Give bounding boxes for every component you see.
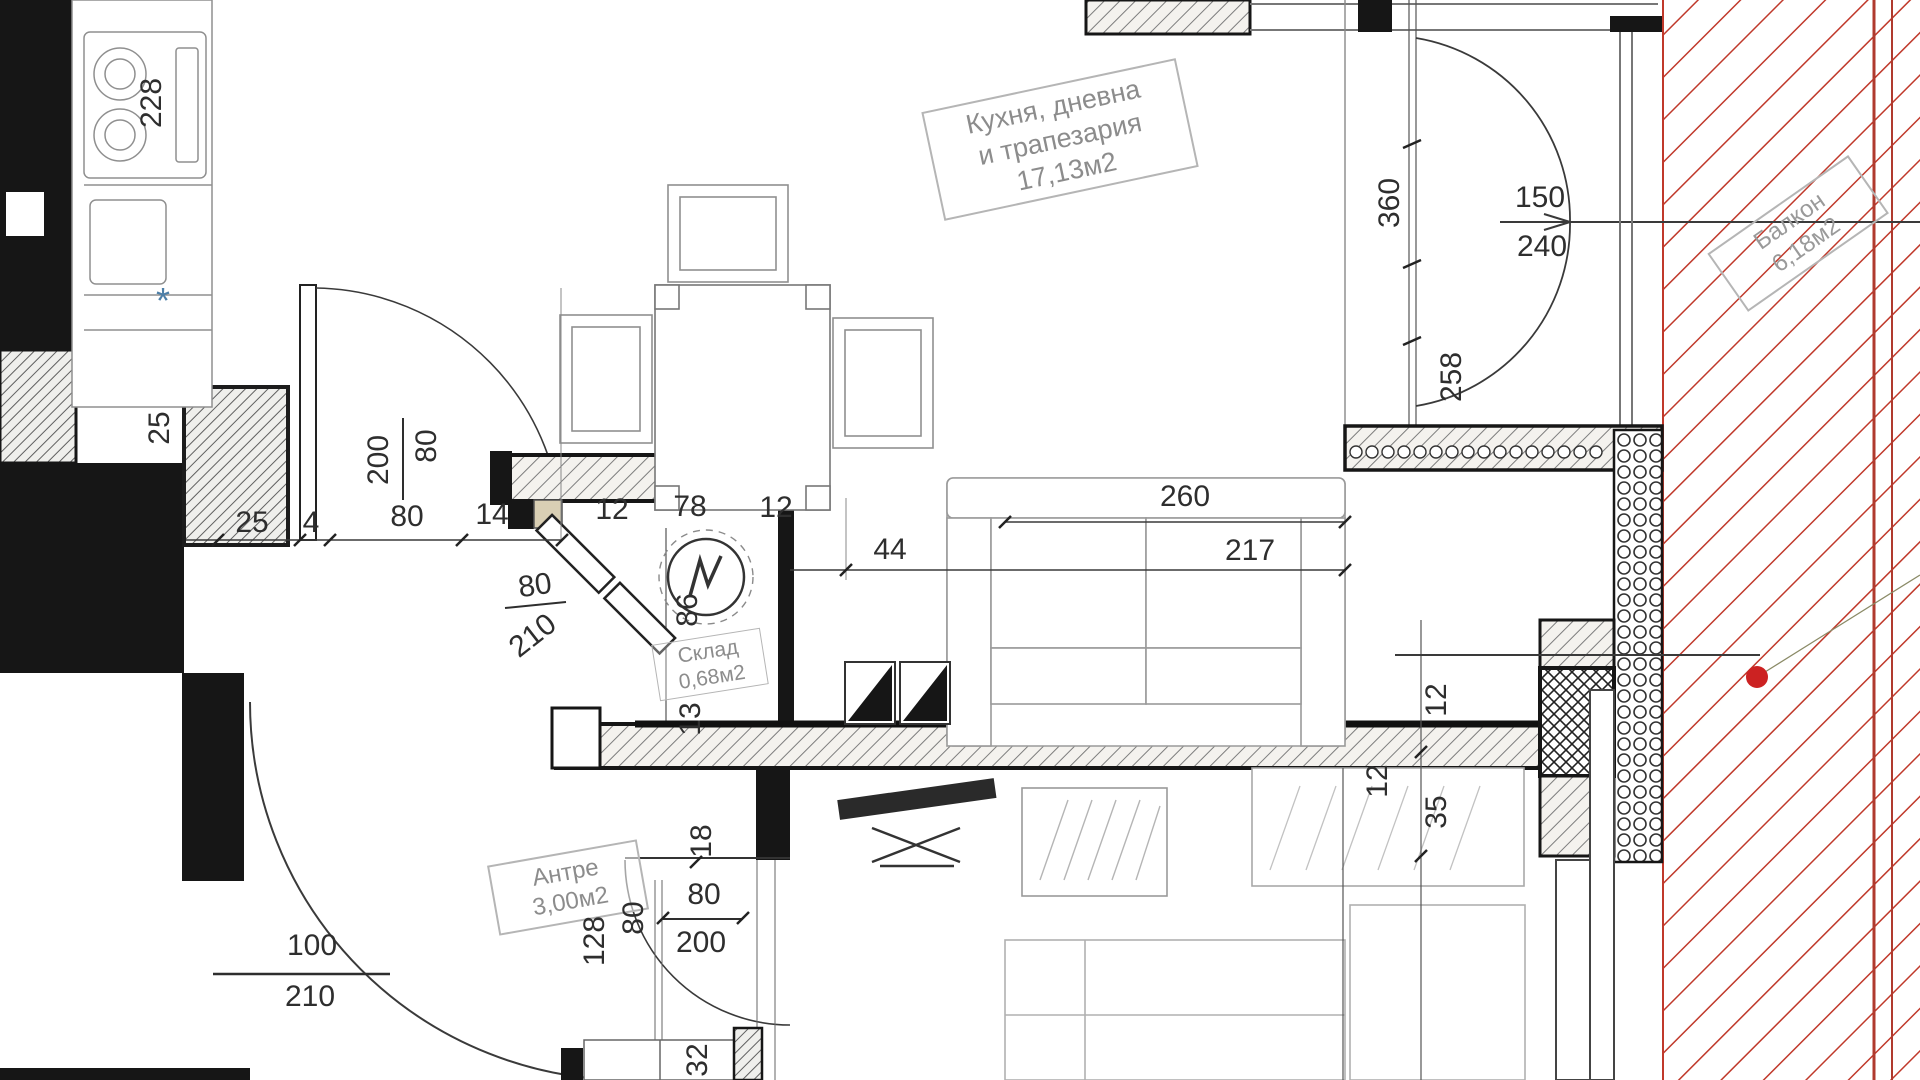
- dim-label-14: 14: [475, 498, 508, 532]
- bed: [1005, 905, 1525, 1080]
- dim-label-18: 18: [685, 824, 719, 857]
- sofa: [947, 478, 1345, 746]
- dim-label-12: 12: [595, 493, 628, 527]
- dim-label-258: 258: [1435, 352, 1469, 402]
- dim-label-25: 25: [235, 506, 268, 540]
- door-jamb: [756, 768, 790, 860]
- dim-label-12: 12: [1420, 683, 1454, 716]
- dim-label-80: 80: [390, 500, 423, 534]
- dim-label-228: 228: [135, 78, 169, 128]
- dining-table: [655, 285, 830, 510]
- wall-end-block: [552, 708, 600, 768]
- dim-label-80: 80: [410, 429, 444, 462]
- dim-label-240: 240: [1517, 230, 1567, 264]
- dim-label-150: 150: [1515, 181, 1565, 215]
- dresser: [1022, 788, 1167, 896]
- wall-left-hatched: [0, 350, 76, 463]
- wall-niche: [6, 192, 44, 236]
- dim-label-4: 4: [303, 506, 320, 540]
- kitchen-counter: [72, 0, 212, 407]
- tv-unit: [837, 778, 996, 866]
- dim-label-86: 86: [671, 593, 705, 626]
- sliding-door-frame-a: [1556, 860, 1590, 1080]
- wall-block-hatch-upper: [1540, 620, 1614, 668]
- dim-label-360: 360: [1373, 178, 1407, 228]
- dim-label-12: 12: [759, 491, 792, 525]
- wall-left-top: [0, 0, 72, 350]
- dim-label-100: 100: [287, 929, 337, 963]
- tv-stand: [872, 828, 960, 862]
- red-marker-dot: [1746, 666, 1768, 688]
- balcony-hatch-area: [1662, 0, 1920, 1080]
- dim-label-12: 12: [1361, 764, 1395, 797]
- dim-label-35: 35: [1420, 795, 1454, 828]
- tv-screen: [837, 778, 996, 820]
- dim-label-32: 32: [681, 1043, 715, 1076]
- dim-label-80: 80: [687, 878, 720, 912]
- dim-label-25: 25: [143, 411, 177, 444]
- dim-label-78: 78: [673, 490, 706, 524]
- balcony-zone: [1662, 0, 1920, 1080]
- wall-insulation-bubbles: [1614, 430, 1662, 862]
- dim-label-80: 80: [516, 567, 554, 605]
- wall-top-hatched: [1086, 0, 1250, 34]
- floor-plan-page: Кухня, дневна и трапезария 17,13м2 Антре…: [0, 0, 1920, 1080]
- dim-label-13: 13: [674, 702, 708, 735]
- dim-label-260: 260: [1160, 480, 1210, 514]
- wall-left-middle: [0, 463, 184, 673]
- dim-label-200: 200: [676, 926, 726, 960]
- wall-bottom-left: [0, 1068, 250, 1080]
- dim-label-128: 128: [578, 916, 612, 966]
- dim-label-80: 80: [617, 901, 651, 934]
- sink-symbol: [90, 200, 166, 284]
- dim-label-*: *: [156, 280, 170, 322]
- sliding-door-frame-b: [1590, 690, 1614, 1080]
- dim-label-200: 200: [362, 435, 396, 485]
- dim-label-217: 217: [1225, 534, 1275, 568]
- dim-label-210: 210: [285, 980, 335, 1014]
- dim-label-44: 44: [873, 533, 906, 567]
- door-leaf: [300, 285, 316, 540]
- wall-left-lower: [182, 673, 244, 881]
- wall-cabinet-triangles: [845, 662, 950, 724]
